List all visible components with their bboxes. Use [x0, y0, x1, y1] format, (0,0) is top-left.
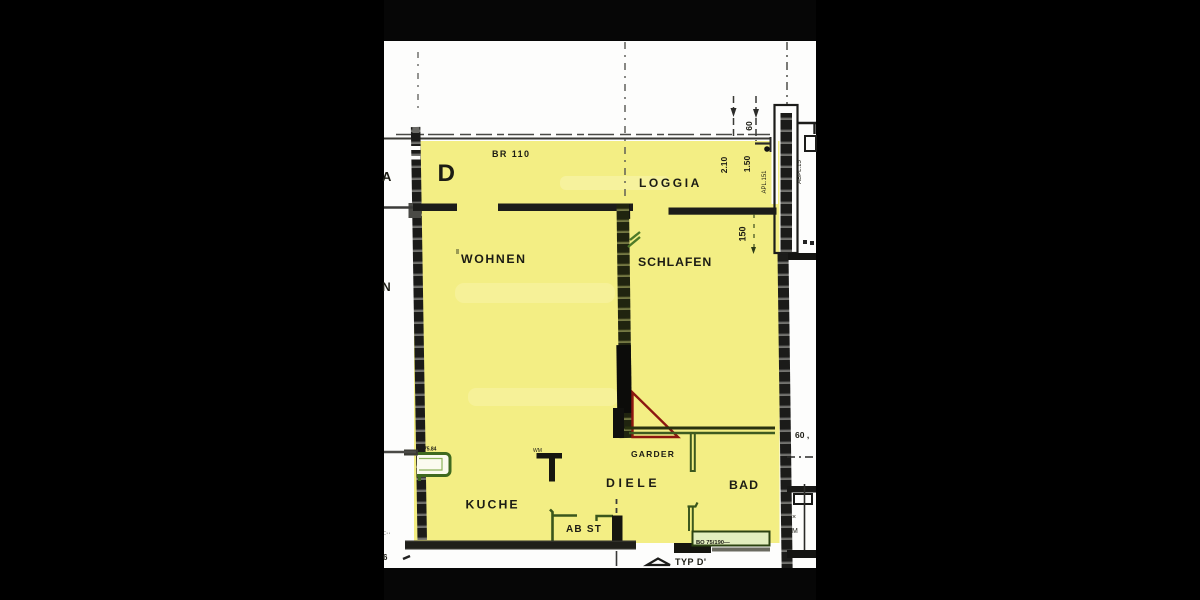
svg-text:10.75.84: 10.75.84 — [417, 447, 437, 453]
svg-text:SCHLAFEN: SCHLAFEN — [638, 255, 712, 269]
svg-text:DIELE: DIELE — [606, 476, 660, 490]
svg-text::··: :·· — [384, 530, 391, 537]
svg-text:A: A — [382, 169, 392, 184]
svg-text:N: N — [382, 280, 391, 294]
svg-text:×: × — [792, 514, 796, 521]
svg-text:ABPL.15: ABPL.15 — [797, 159, 803, 183]
svg-text:AB ST: AB ST — [566, 524, 602, 535]
svg-text:LOGGIA: LOGGIA — [639, 176, 702, 190]
svg-text:BAD: BAD — [729, 478, 759, 492]
svg-text:TYP D': TYP D' — [675, 557, 706, 567]
svg-text:GARDER: GARDER — [631, 449, 675, 459]
svg-text:WOHNEN: WOHNEN — [461, 252, 527, 266]
svg-text:WM: WM — [533, 448, 542, 454]
svg-text:60: 60 — [744, 121, 754, 131]
svg-text:KUCHE: KUCHE — [466, 498, 520, 512]
svg-text:D: D — [438, 160, 456, 187]
svg-text:1.50: 1.50 — [742, 155, 752, 172]
svg-text:60 ,: 60 , — [795, 430, 809, 440]
svg-text:2.10: 2.10 — [719, 156, 729, 173]
svg-text:M: M — [792, 528, 798, 535]
svg-text:BR 110: BR 110 — [492, 149, 530, 159]
svg-text:BO 75/190—: BO 75/190— — [696, 540, 730, 546]
svg-text:6: 6 — [383, 553, 388, 562]
svg-text:APL.151: APL.151 — [762, 170, 768, 194]
svg-text:150: 150 — [738, 226, 748, 241]
